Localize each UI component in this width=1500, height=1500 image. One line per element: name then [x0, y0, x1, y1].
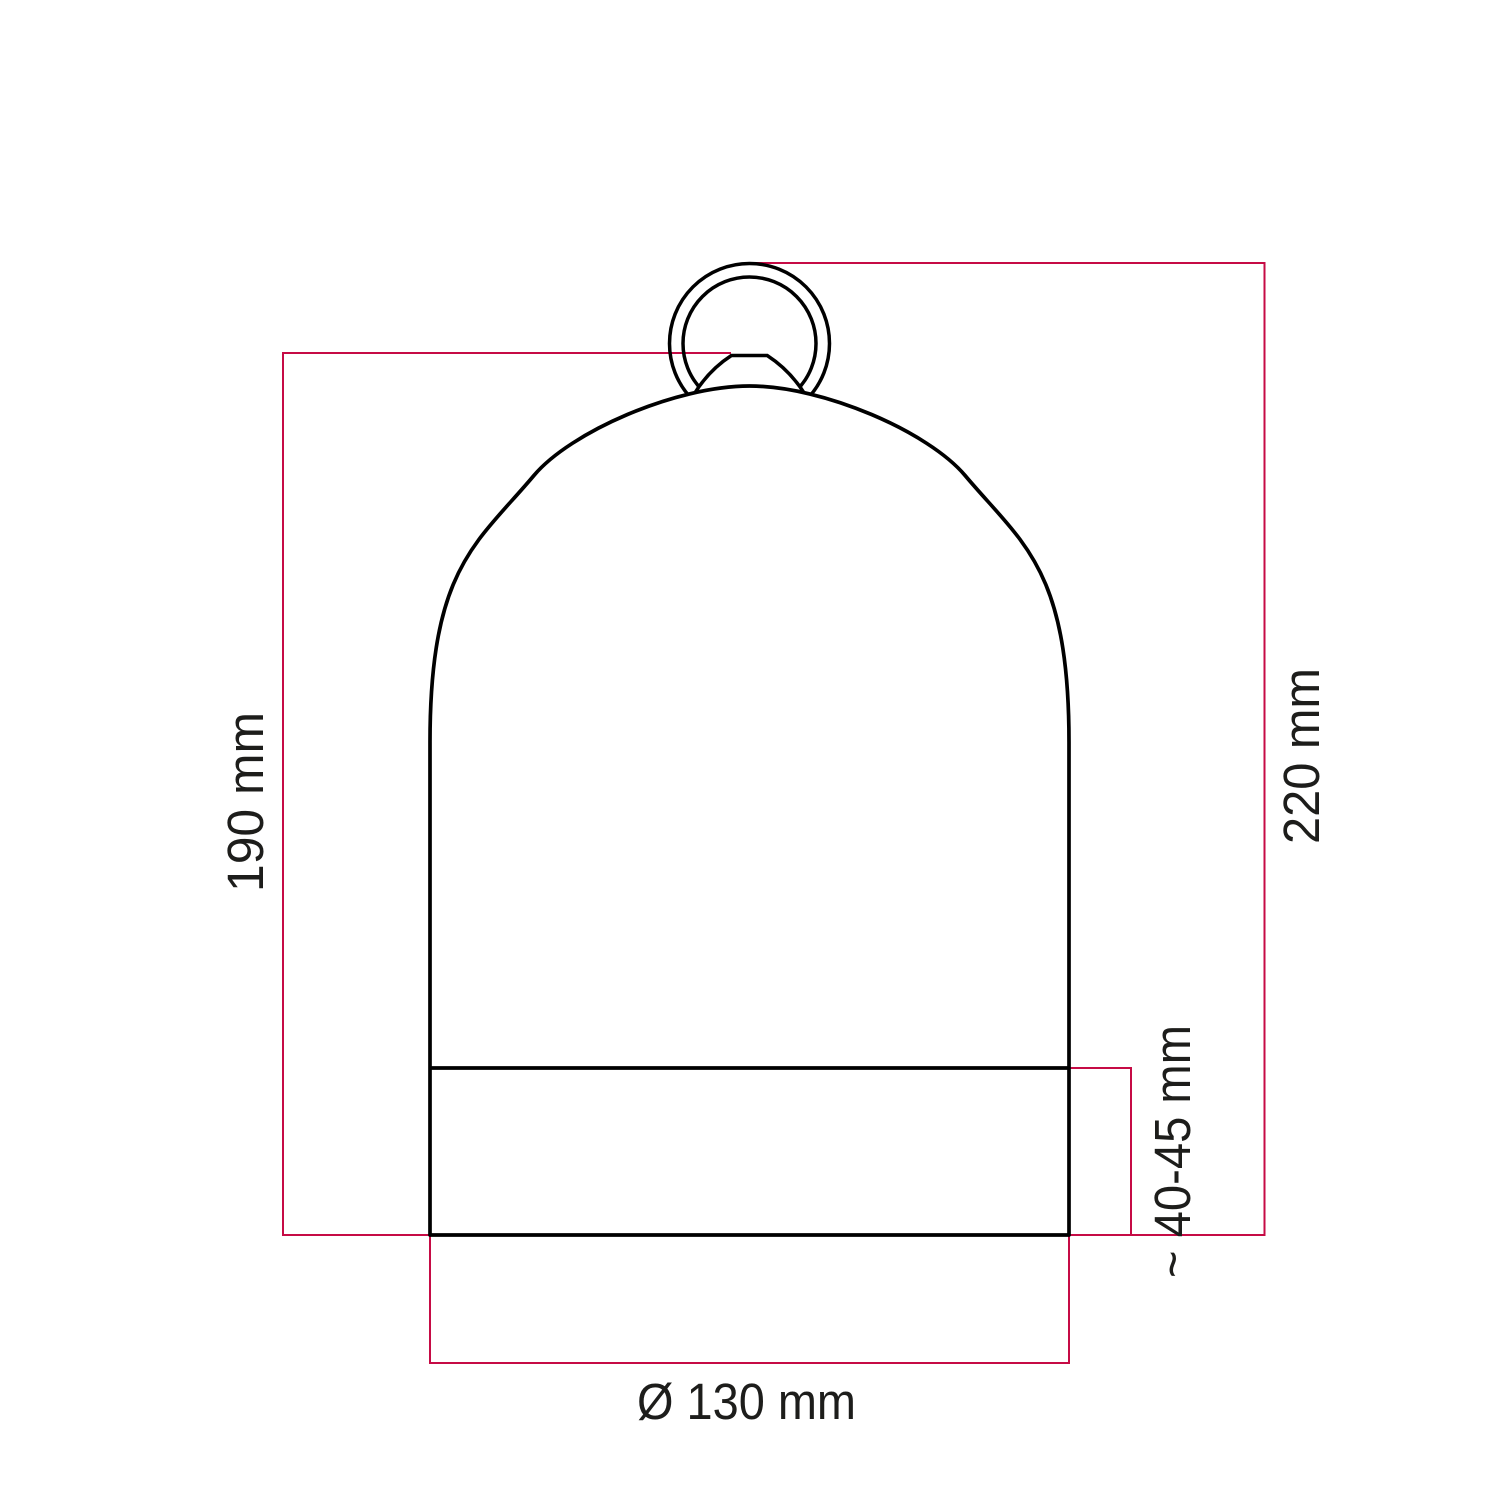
svg-text:220 mm: 220 mm: [1273, 668, 1330, 844]
svg-text:Ø 130 mm: Ø 130 mm: [637, 1373, 856, 1430]
svg-text:190 mm: 190 mm: [217, 712, 274, 892]
svg-text:~ 40-45 mm: ~ 40-45 mm: [1144, 1025, 1201, 1278]
